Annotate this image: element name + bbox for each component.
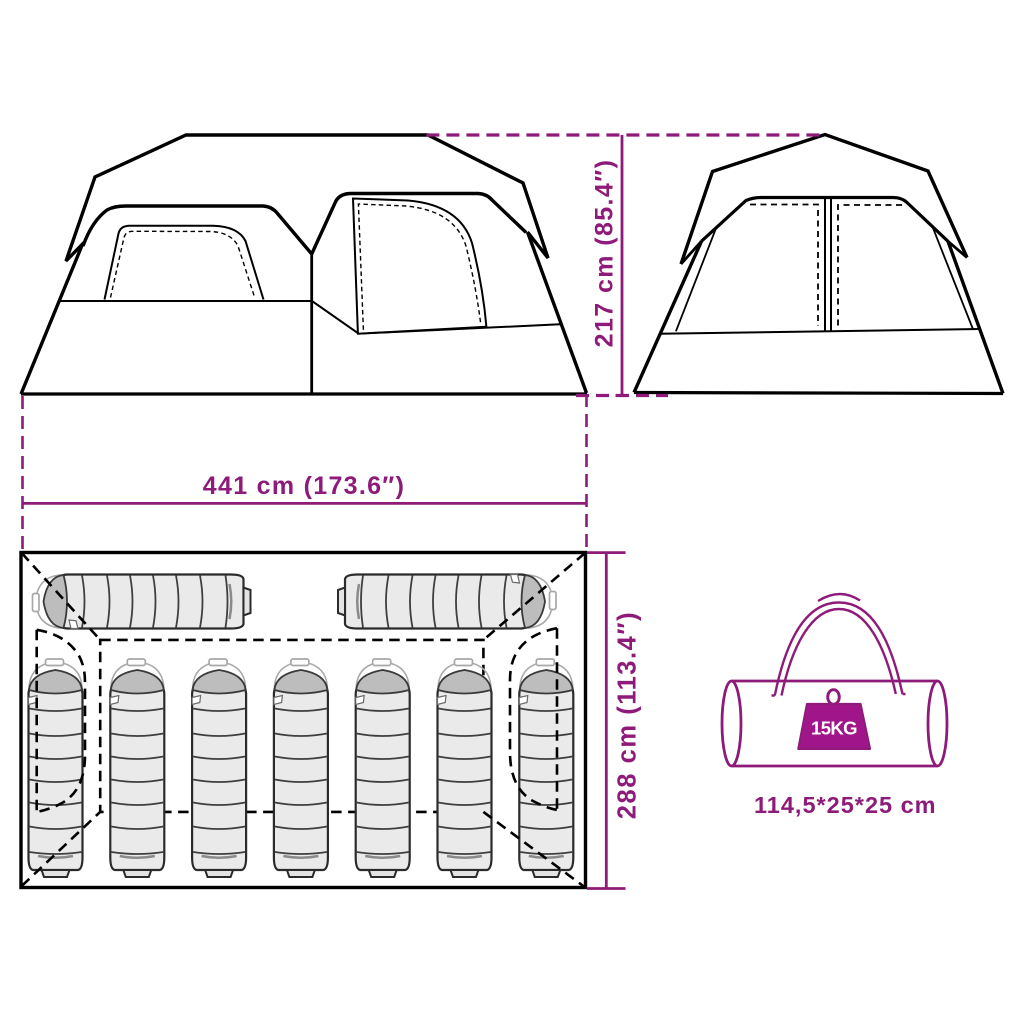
- svg-text:114,5*25*25 cm: 114,5*25*25 cm: [754, 792, 937, 818]
- svg-text:441 cm (173.6″): 441 cm (173.6″): [203, 472, 405, 500]
- svg-text:15KG: 15KG: [811, 718, 857, 739]
- svg-text:217 cm (85.4″): 217 cm (85.4″): [591, 159, 619, 348]
- svg-text:288 cm (113.4″): 288 cm (113.4″): [614, 611, 642, 819]
